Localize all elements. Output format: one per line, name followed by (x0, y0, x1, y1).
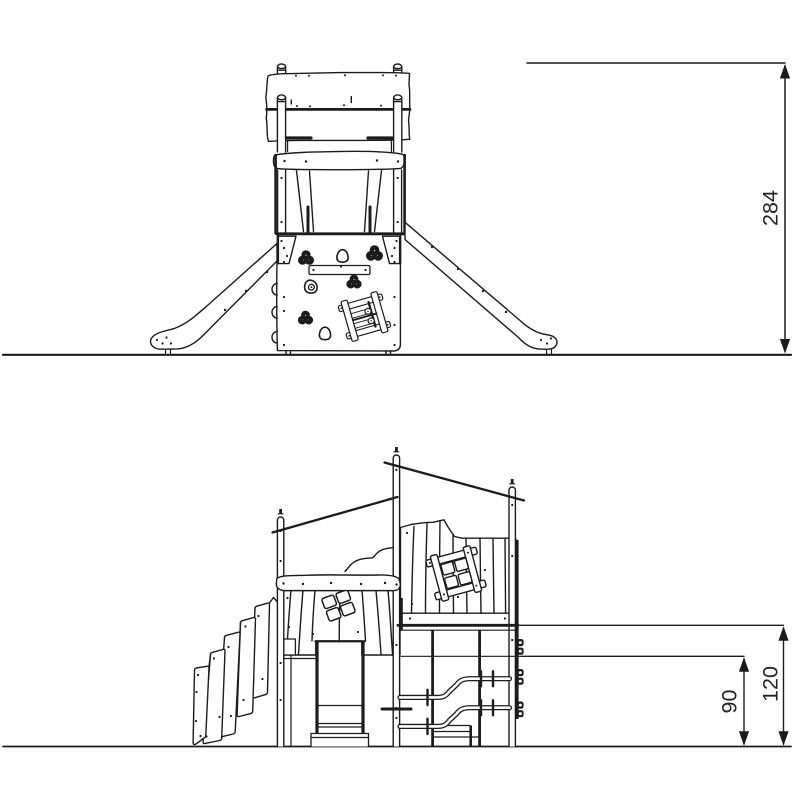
svg-text:284: 284 (759, 190, 783, 226)
svg-text:90: 90 (718, 690, 742, 714)
svg-text:120: 120 (759, 666, 783, 702)
